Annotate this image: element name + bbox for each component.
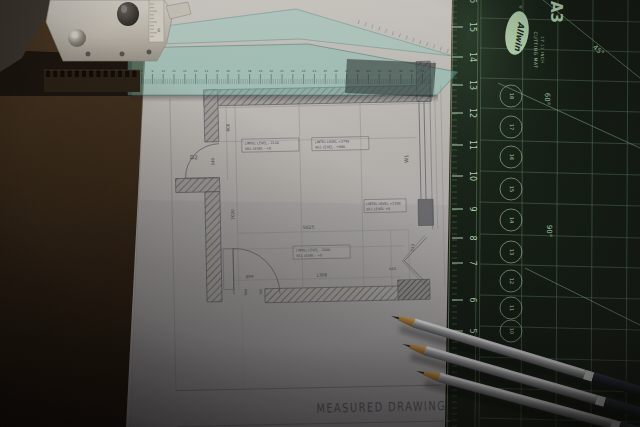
dim-765: 765	[259, 289, 263, 296]
ruler-number: 15	[215, 69, 219, 73]
scene-svg: 1615141312111098765 181716151413121110 4…	[0, 0, 640, 427]
dome-rivet	[68, 29, 86, 47]
window-sill-block	[418, 199, 434, 225]
ruler-number: 31	[388, 69, 392, 73]
mat-format-label: A3	[547, 1, 565, 23]
mat-circle-number: 15	[509, 186, 515, 192]
ruler-number: 25	[323, 69, 327, 73]
ruler-number: 30	[377, 69, 381, 73]
mat-circle-number: 13	[509, 249, 515, 255]
serration-tooth	[82, 70, 86, 77]
ruler-number: 28	[356, 69, 360, 73]
mat-edge-number: 12	[468, 108, 477, 118]
mat-edge-number: 7	[468, 260, 477, 265]
serration-tooth	[118, 70, 122, 77]
mat-size-label: 17 11 INCH	[540, 36, 545, 64]
dim-899: 899	[246, 274, 254, 279]
wall-bottom-right-corner	[398, 279, 430, 300]
ruler-number: 33	[410, 69, 414, 73]
dim-540: 540	[210, 157, 215, 165]
ruler-number: 26	[334, 69, 338, 73]
ruler-number: 29	[367, 69, 371, 73]
mat-edge-number: 9	[468, 206, 477, 211]
ruler-number: 10	[161, 69, 165, 73]
dim-5025: 5025	[303, 225, 315, 230]
annotation-text: SILL LEVEL - +0	[245, 146, 271, 151]
dim-600: 600	[225, 123, 230, 131]
screw	[120, 52, 125, 57]
mat-angle-90-label: 90°	[545, 225, 553, 237]
annotation-text: SILL LEVEL - +965	[315, 145, 345, 150]
mat-product-label: CUTTING MAT	[533, 32, 538, 69]
serration-tooth	[96, 70, 100, 77]
mat-edge-number: 14	[468, 52, 477, 62]
mat-edge-number: 5	[468, 328, 477, 333]
ruler-number: 12	[183, 69, 187, 73]
mat-angle-60-label: 60°	[543, 93, 551, 105]
serration-tooth	[68, 70, 72, 77]
serration-tooth	[60, 70, 64, 77]
mat-edge-number: 11	[468, 140, 477, 150]
ruler-number: 11	[172, 69, 176, 73]
serration-tooth	[53, 70, 57, 77]
ruler-shadow	[130, 95, 438, 102]
annotation-text: LINTEL LEVEL +2795	[315, 139, 350, 144]
wall-left-lower	[205, 192, 222, 302]
adjustment-knob	[117, 2, 139, 26]
wall-bottom	[265, 286, 399, 303]
serration-tooth	[111, 70, 115, 77]
ruler-number: 23	[302, 69, 306, 73]
ruler-number: 13	[194, 69, 198, 73]
screw	[147, 50, 152, 55]
annotation-text: LINTEL LEVEL - 2110	[245, 141, 279, 146]
ruler-number: 14	[205, 69, 209, 73]
dim-1308: 1308	[316, 272, 327, 277]
door-d2-label: D2	[190, 154, 198, 160]
serration-tooth	[46, 70, 50, 77]
serrated-ruler	[44, 70, 140, 92]
serration-tooth	[132, 70, 136, 77]
ruler-number: 22	[291, 69, 295, 73]
drawing-title: MEASURED DRAWING	[316, 398, 446, 416]
ruler-number: 18	[248, 69, 252, 73]
annotation-text: LINTEL LEVEL - 2600	[296, 248, 330, 253]
serration-tooth	[104, 70, 108, 77]
mat-edge-number: 16	[468, 0, 477, 3]
ruler-number: 32	[399, 69, 403, 73]
annotation-text: SILL LEVEL +0	[366, 207, 390, 211]
serration-tooth	[89, 70, 93, 77]
mat-circle-number: 18	[509, 93, 515, 99]
window-w1-label: W1	[403, 155, 409, 163]
mat-edge-number: 8	[468, 235, 477, 240]
ruler-number: 16	[226, 69, 230, 73]
mat-circle-number: 11	[509, 305, 515, 311]
serration-tooth	[125, 70, 129, 77]
ruler-number: 24	[313, 69, 317, 73]
ruler-number: 34	[421, 69, 425, 73]
ruler-number: 8	[141, 69, 143, 73]
ruler-number: 20	[269, 69, 273, 73]
photo-desk-scene: 1615141312111098765 181716151413121110 4…	[0, 0, 640, 427]
ruler-number: 19	[259, 69, 263, 73]
mat-edge-number: 13	[468, 80, 477, 90]
dim-445: 445	[389, 266, 397, 271]
mat-edge-number: 10	[468, 171, 477, 181]
wall-left-stub	[176, 178, 220, 193]
annotation-text: SILL LEVEL - +0	[296, 253, 322, 258]
ruler-number: 9	[152, 69, 154, 73]
dim-7020: 7020	[230, 209, 235, 220]
brand-registered-mark: ®	[518, 4, 523, 10]
ruler-number: 21	[280, 69, 284, 73]
mat-edge-number: 6	[468, 297, 477, 302]
vernier-scale	[149, 0, 164, 42]
mat-circle-number: 16	[509, 154, 515, 160]
dim-725: 725	[410, 243, 415, 251]
mat-circle-number: 10	[509, 328, 515, 334]
screw	[86, 52, 91, 57]
ruler-number: 17	[237, 69, 241, 73]
mat-circle-number: 14	[509, 217, 515, 223]
mat-edge-number: 15	[468, 22, 477, 32]
mat-circle-number: 17	[509, 124, 515, 130]
dim-968: 968	[244, 289, 248, 296]
mat-circle-number: 12	[509, 278, 515, 284]
serration-tooth	[75, 70, 79, 77]
ruler-number: 27	[345, 69, 349, 73]
vernier-scale-text: 85	[157, 28, 161, 32]
annotation-text: LINTEL LEVEL +2100	[366, 201, 401, 206]
